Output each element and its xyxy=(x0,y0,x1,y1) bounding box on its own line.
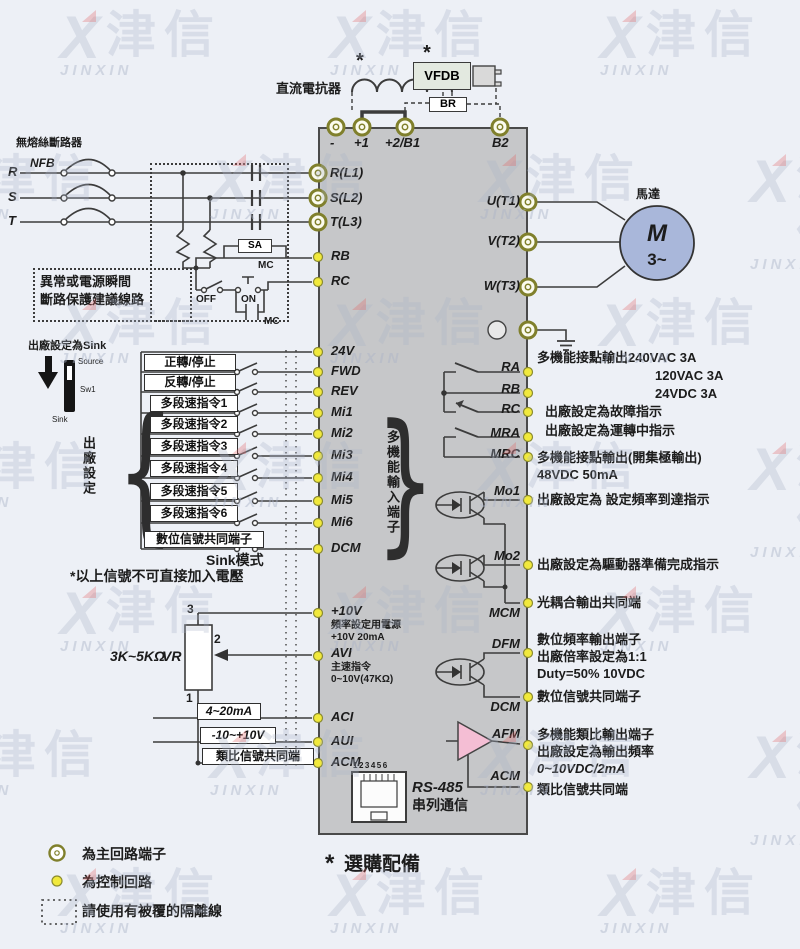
terminal-24v: 24V xyxy=(331,344,354,359)
terminal-sl2: S(L2) xyxy=(330,191,363,206)
dfm-note-3: Duty=50% 10VDC xyxy=(537,667,645,682)
switch-sw1-label: Sw1 xyxy=(80,385,96,394)
fault-indication-note: 出廠設定為故障指示 xyxy=(545,405,662,420)
terminal-dcm: DCM xyxy=(331,541,361,556)
afm-note-2: 出廠設定為輸出頻率 xyxy=(537,745,654,760)
sink-arrow-icon xyxy=(38,372,58,389)
terminal-rb: RB xyxy=(331,249,350,264)
relay-output-note-1: 多機能接點輸出240VAC 3A xyxy=(537,351,696,366)
mc-coil-label: MC xyxy=(258,260,274,272)
mcm-note: 光耦合輸出共同端 xyxy=(537,596,641,611)
pot-pin3: 3 xyxy=(187,603,194,617)
terminal-dcm-right: DCM xyxy=(465,700,520,715)
dc-reactor-label: 直流電抗器 xyxy=(276,82,341,97)
acm-common-box: 類比信號共同端 xyxy=(202,748,314,765)
wiring-diagram-page: 直流電抗器 * * VFDB BR - +1 +2/B1 B2 無熔絲斷路器 N… xyxy=(0,0,800,949)
sa-box: SA xyxy=(238,239,272,253)
rs485-label: RS-485 xyxy=(412,779,463,796)
afm-note-1: 多機能類比輸出端子 xyxy=(537,728,654,743)
dfm-note-2: 出廠倍率設定為1:1 xyxy=(537,650,647,665)
mo1-note: 出廠設定為 設定頻率到達指示 xyxy=(537,493,710,508)
input-row-mi2: 多段速指令2 xyxy=(150,416,238,433)
terminal-mi4: Mi4 xyxy=(331,470,353,485)
terminal-rev: REV xyxy=(331,384,358,399)
freq-power-note-2: +10V 20mA xyxy=(331,632,385,644)
aci-range-box: 4~20mA xyxy=(197,703,261,720)
terminal-mi3: Mi3 xyxy=(331,448,353,463)
input-row-rev: 反轉/停止 xyxy=(144,374,236,391)
optional-equipment-label: 選購配備 xyxy=(344,854,420,876)
terminal-avi: AVI xyxy=(331,646,352,661)
terminal-acm-right: ACM xyxy=(465,769,520,784)
input-row-mi4: 多段速指令4 xyxy=(150,460,238,477)
protection-note-1: 異常或電源瞬間 xyxy=(40,275,131,290)
open-collector-note-1: 多機能接點輸出(開集極輸出) xyxy=(537,451,702,466)
input-row-fwd: 正轉/停止 xyxy=(144,354,236,371)
switch-source-label: Source xyxy=(78,357,103,366)
freq-power-note-1: 頻率設定用電源 xyxy=(331,620,401,632)
protection-note-2: 斷路保護建議線路 xyxy=(40,293,144,308)
terminal-wt3: W(T3) xyxy=(462,279,520,294)
sink-switch-slider xyxy=(67,366,72,380)
relay-output-note-2: 120VAC 3A xyxy=(655,369,723,384)
sink-factory-note: 出廠設定為Sink xyxy=(28,340,106,353)
terminal-minus: - xyxy=(330,136,334,151)
terminal-mi1: Mi1 xyxy=(331,405,353,420)
input-row-mi5: 多段速指令5 xyxy=(150,483,238,500)
terminal-mi5: Mi5 xyxy=(331,493,353,508)
dfm-note-1: 數位頻率輸出端子 xyxy=(537,633,641,648)
legend-control-circuit: 為控制回路 xyxy=(82,874,152,890)
pot-value-label: 3K~5KΩ xyxy=(110,648,165,664)
motor-label: 馬達 xyxy=(636,188,660,202)
phase-t: T xyxy=(8,214,16,229)
terminal-mra: MRA xyxy=(465,426,520,441)
terminal-b2: B2 xyxy=(492,136,509,151)
terminal-mi2: Mi2 xyxy=(331,426,353,441)
avi-note-2: 0~10V(47KΩ) xyxy=(331,674,393,686)
pot-pin2: 2 xyxy=(214,633,221,647)
terminal-rb-right: RB xyxy=(470,382,520,397)
terminal-tl3: T(L3) xyxy=(330,215,362,230)
factory-setting-vertical: 出廠設定 xyxy=(80,436,95,496)
terminal-rl1: R(L1) xyxy=(330,166,363,181)
terminal-ra: RA xyxy=(470,360,520,375)
terminal-mcm: MCM xyxy=(465,606,520,621)
input-row-dcm: 數位信號共同端子 xyxy=(144,531,264,548)
acm-note: 類比信號共同端 xyxy=(537,783,628,798)
terminal-ut1: U(T1) xyxy=(462,194,520,209)
terminal-mi6: Mi6 xyxy=(331,515,353,530)
terminal-dfm: DFM xyxy=(465,637,520,652)
rs485-sub-label: 串列通信 xyxy=(412,797,468,813)
sink-mode-label: Sink模式 xyxy=(206,552,264,568)
voltage-warning: *以上信號不可直接加入電壓 xyxy=(70,568,243,584)
input-group-vertical: 多機能輸入端子 xyxy=(384,430,399,535)
terminal-rc-right: RC xyxy=(470,402,520,417)
on-button-label: ON xyxy=(241,294,256,306)
terminal-10v: +10V xyxy=(331,604,362,619)
nfb-label: NFB xyxy=(30,157,55,171)
dcm-note: 數位信號共同端子 xyxy=(537,690,641,705)
terminal-mo2: Mo2 xyxy=(465,549,520,564)
motor-m: M xyxy=(640,220,674,248)
reactor-star: * xyxy=(356,50,364,73)
relay-output-note-3: 24VDC 3A xyxy=(655,387,717,402)
afm-note-3: 0~10VDC/2mA xyxy=(537,762,626,777)
terminal-mo1: Mo1 xyxy=(465,484,520,499)
input-row-mi1: 多段速指令1 xyxy=(150,395,238,412)
avi-note-1: 主速指令 xyxy=(331,662,371,674)
pot-pin1: 1 xyxy=(186,692,193,706)
sink-arrow-stem xyxy=(45,356,52,372)
terminal-fwd: FWD xyxy=(331,364,361,379)
terminal-plus2b1: +2/B1 xyxy=(385,136,420,151)
aui-range-box: -10~+10V xyxy=(200,727,276,744)
legend-shielded-wire: 請使用有被覆的隔離線 xyxy=(82,903,222,919)
rs485-pins: 123456 xyxy=(353,761,389,770)
phase-r: R xyxy=(8,165,17,180)
open-collector-note-2: 48VDC 50mA xyxy=(537,468,618,483)
terminal-mrc: MRC xyxy=(465,447,520,462)
terminal-afm: AFM xyxy=(465,727,520,742)
breaker-label: 無熔絲斷路器 xyxy=(16,137,82,150)
running-indication-note: 出廠設定為運轉中指示 xyxy=(545,424,675,439)
terminal-aci: ACI xyxy=(331,710,353,725)
vfdb-unit: VFDB xyxy=(413,62,471,90)
input-row-mi6: 多段速指令6 xyxy=(150,505,238,522)
optional-star: * xyxy=(325,850,334,878)
terminal-plus1: +1 xyxy=(354,136,369,151)
phase-s: S xyxy=(8,190,17,205)
terminal-rc: RC xyxy=(331,274,350,289)
terminal-vt2: V(T2) xyxy=(462,234,520,249)
brake-resistor: BR xyxy=(429,97,467,112)
pot-vr-label: VR xyxy=(162,648,181,664)
input-row-mi3: 多段速指令3 xyxy=(150,438,238,455)
mo2-note: 出廠設定為驅動器準備完成指示 xyxy=(537,558,719,573)
off-button-label: OFF xyxy=(196,294,216,306)
legend-main-circuit: 為主回路端子 xyxy=(82,846,166,862)
mc-contact-label: MC xyxy=(264,316,280,328)
switch-sink-label: Sink xyxy=(52,415,68,424)
terminal-aui: AUI xyxy=(331,734,353,749)
motor-phase: 3~ xyxy=(640,250,674,270)
